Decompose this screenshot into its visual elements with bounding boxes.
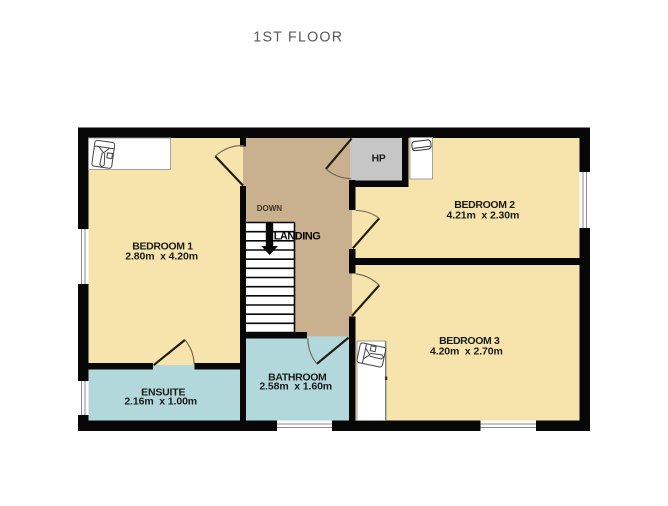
svg-text:HP: HP: [372, 153, 386, 164]
svg-text:4.21m x 2.30m: 4.21m x 2.30m: [447, 209, 520, 221]
svg-text:2.80m x 4.20m: 2.80m x 4.20m: [125, 251, 198, 263]
svg-text:1ST FLOOR: 1ST FLOOR: [253, 29, 343, 45]
svg-text:2.16m x 1.00m: 2.16m x 1.00m: [124, 396, 197, 408]
svg-text:4.20m x 2.70m: 4.20m x 2.70m: [430, 346, 503, 358]
svg-text:DOWN: DOWN: [257, 204, 283, 213]
svg-text:2.58m x 1.60m: 2.58m x 1.60m: [259, 381, 332, 393]
svg-text:LANDING: LANDING: [274, 230, 321, 242]
